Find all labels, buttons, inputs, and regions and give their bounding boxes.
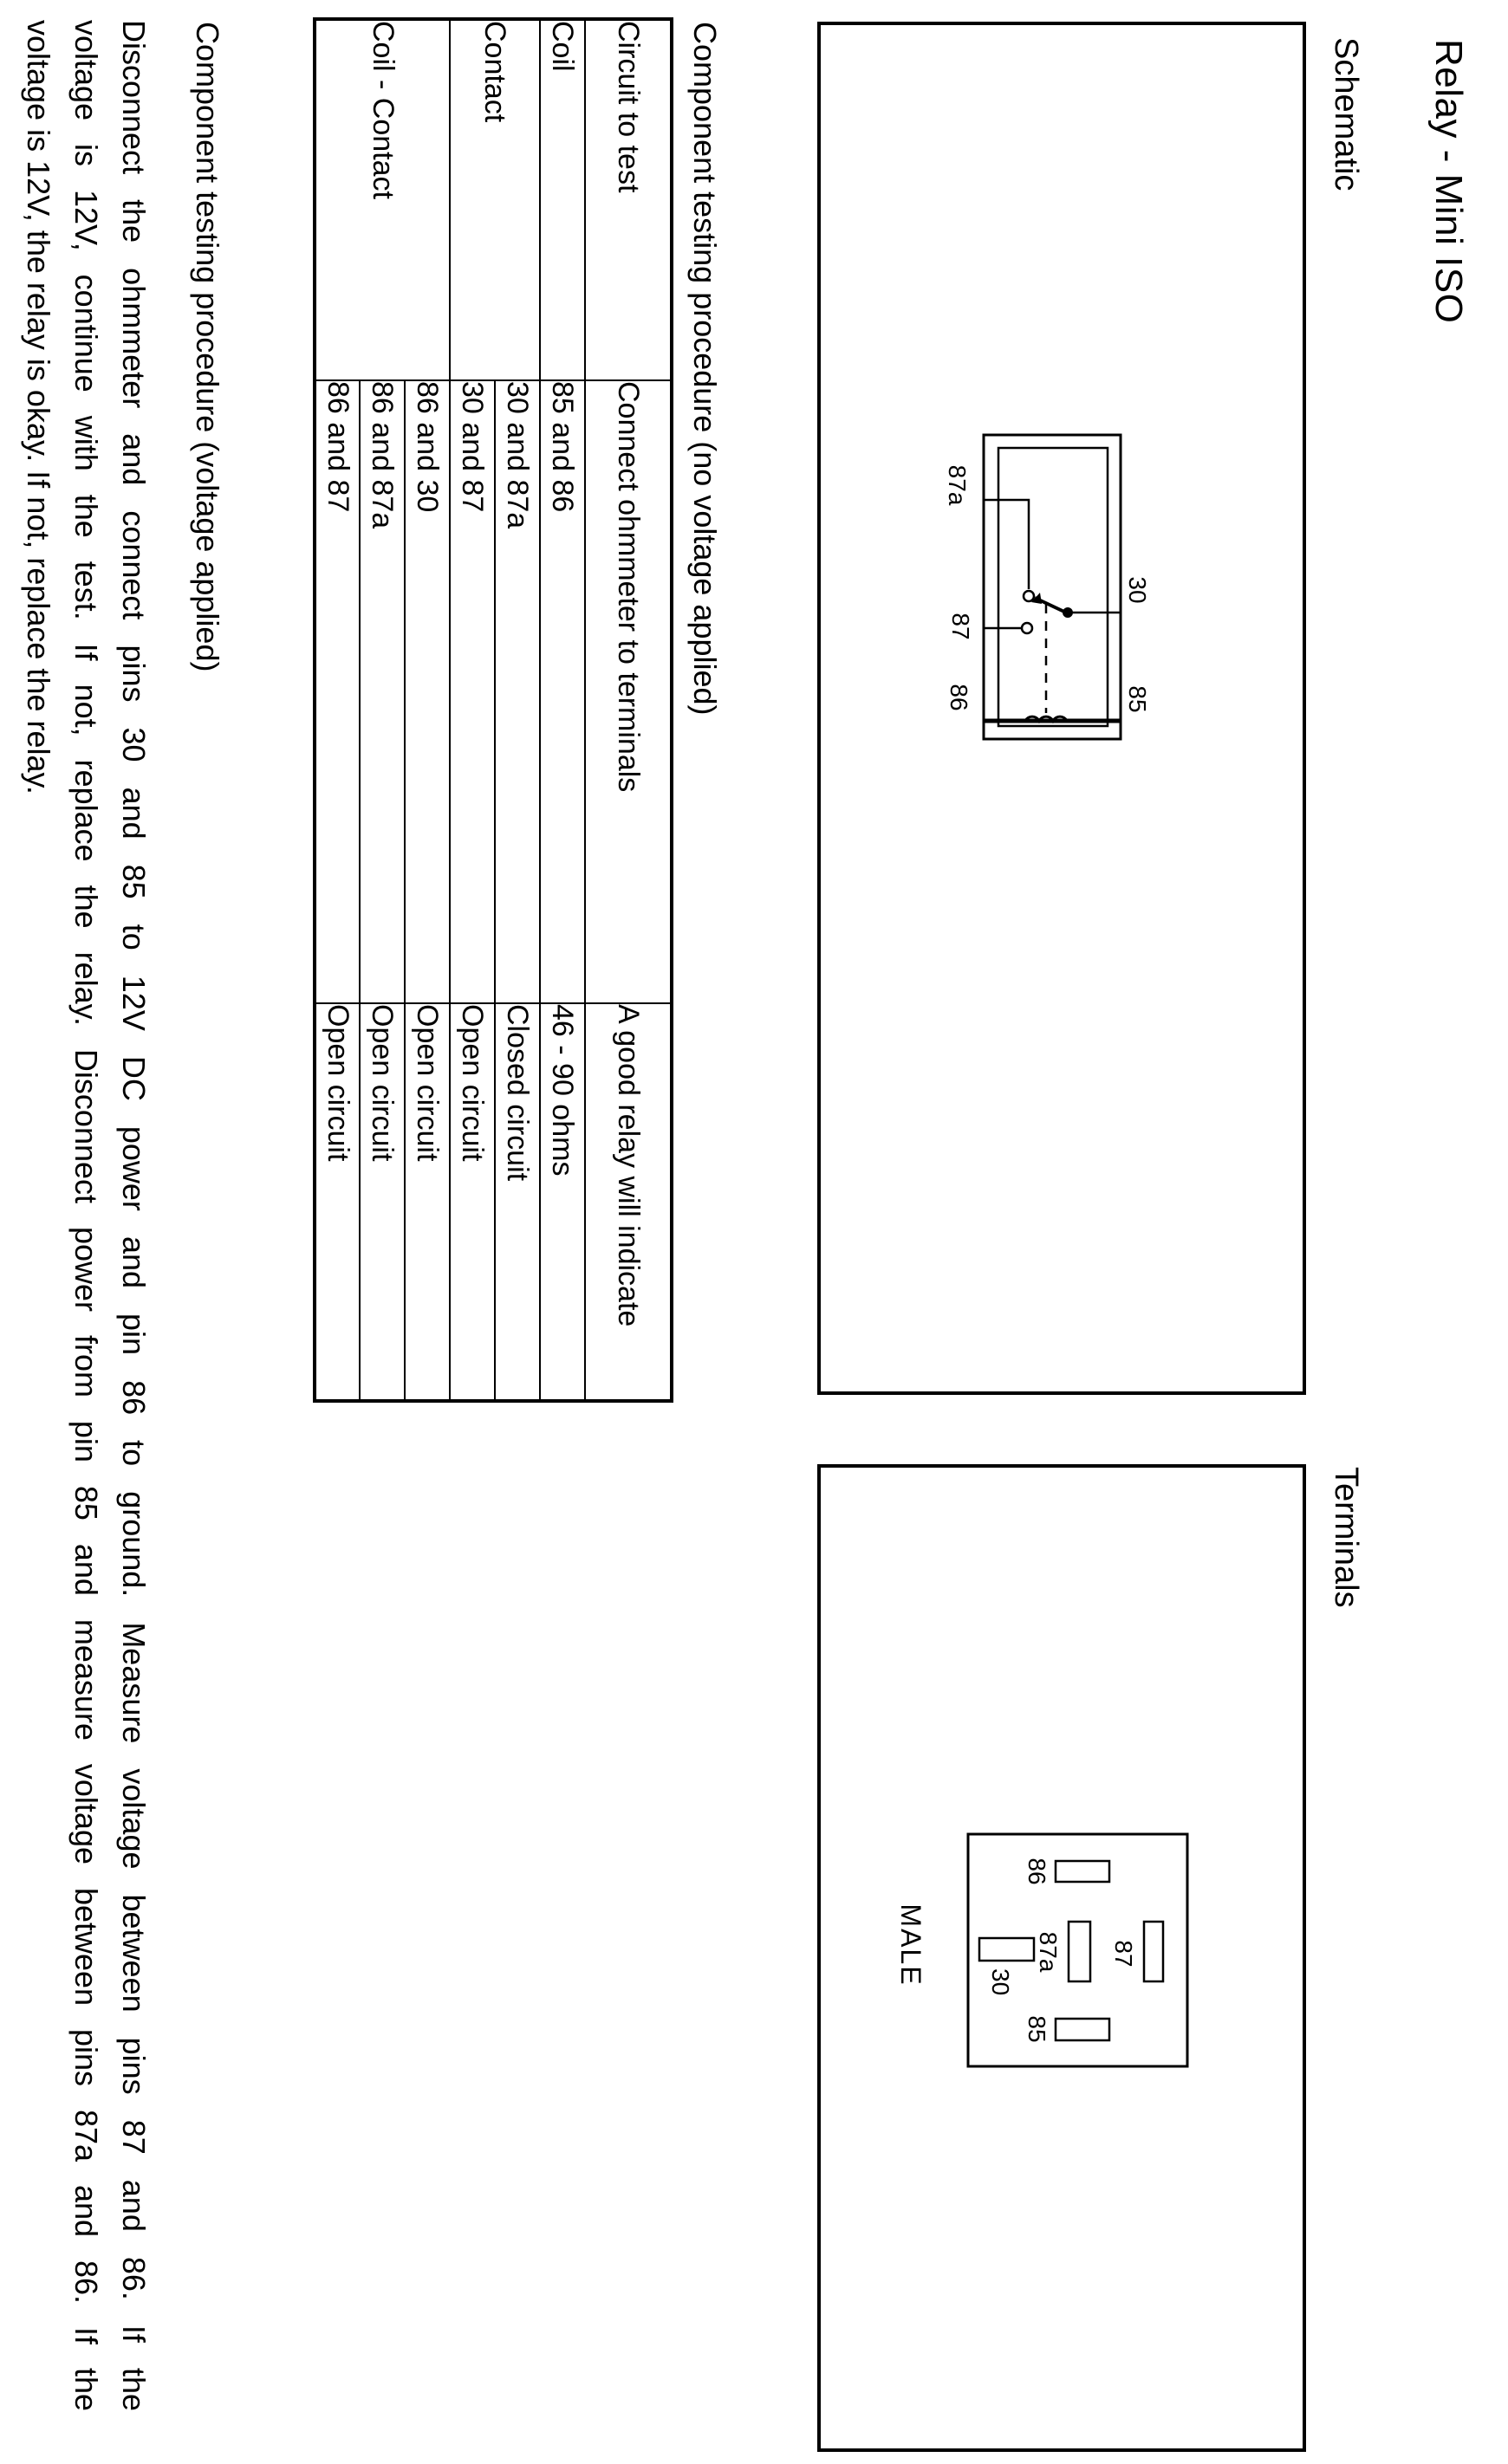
cell-terminals: 86 and 87a	[360, 380, 405, 1003]
cell-circuit: Contact	[450, 19, 540, 380]
relay-body-inner-outline	[998, 448, 1108, 726]
schematic-pin-label-87: 87	[947, 613, 974, 639]
voltage-test-heading: Component testing procedure (voltage app…	[189, 22, 225, 671]
terminals-section-box: 86 85 30 87a 87 MALE	[817, 1464, 1306, 2452]
terminals-section-heading: Terminals	[1327, 1467, 1364, 1608]
cell-indication: Closed circuit	[495, 1003, 540, 1401]
contact-87a-circle	[1024, 591, 1034, 601]
relay-body-outline	[984, 435, 1121, 739]
cell-indication: Open circuit	[450, 1003, 495, 1401]
terminal-slot-87	[1144, 1922, 1163, 1981]
connector-face-outline	[968, 1834, 1187, 2066]
cell-circuit: Coil	[540, 19, 585, 380]
connector-gender-label: MALE	[895, 1903, 926, 1986]
table-header-row: Circuit to test Connect ohmmeter to term…	[585, 19, 672, 1401]
table-row: Contact 30 and 87a Closed circuit	[495, 19, 540, 1401]
schematic-section-box: 87a 87 86 30 85	[817, 22, 1306, 1395]
terminal-label-85: 85	[1024, 2015, 1050, 2042]
terminal-label-87: 87	[1110, 1940, 1137, 1967]
cell-terminals: 30 and 87	[450, 380, 495, 1003]
table-row: Coil - Contact 86 and 30 Open circuit	[405, 19, 450, 1401]
terminals-connector-drawing: 86 85 30 87a 87 MALE	[821, 1468, 1303, 2448]
terminal-slot-86	[1056, 1861, 1109, 1882]
contact-87-circle	[1022, 623, 1032, 633]
terminal-slot-30	[979, 1938, 1034, 1961]
no-voltage-test-heading: Component testing procedure (no voltage …	[686, 22, 723, 716]
schematic-pin-label-30: 30	[1124, 576, 1151, 603]
cell-indication: Open circuit	[405, 1003, 450, 1401]
cell-indication: 46 - 90 ohms	[540, 1003, 585, 1401]
terminal-slot-85	[1056, 2019, 1109, 2040]
terminal-label-30: 30	[987, 1968, 1014, 1995]
cell-terminals: 86 and 30	[405, 380, 450, 1003]
cell-indication: Open circuit	[360, 1003, 405, 1401]
schematic-pin-label-86: 86	[946, 684, 972, 710]
cell-terminals: 30 and 87a	[495, 380, 540, 1003]
schematic-section-heading: Schematic	[1327, 37, 1364, 191]
cell-indication: Open circuit	[315, 1003, 360, 1401]
terminal-label-86: 86	[1024, 1858, 1050, 1884]
paragraph-line: Disconnect the ohmmeter and connect pins…	[110, 20, 158, 2411]
terminal-slot-87a	[1069, 1922, 1090, 1981]
wire-87a	[984, 500, 1029, 589]
column-header-circuit: Circuit to test	[585, 19, 672, 380]
cell-circuit: Coil - Contact	[315, 19, 450, 380]
paragraph-line: voltage is 12V, continue with the test. …	[62, 20, 110, 2411]
relay-schematic-drawing: 87a 87 86 30 85	[821, 25, 1303, 1391]
column-header-indication: A good relay will indicate	[585, 1003, 672, 1401]
table-row: Coil 85 and 86 46 - 90 ohms	[540, 19, 585, 1401]
schematic-pin-label-87a: 87a	[944, 465, 971, 506]
column-header-terminals: Connect ohmmeter to terminals	[585, 380, 672, 1003]
terminal-label-87a: 87a	[1035, 1932, 1062, 1973]
paragraph-line: voltage is 12V, the relay is okay. If no…	[15, 20, 62, 2411]
cell-terminals: 85 and 86	[540, 380, 585, 1003]
page-title: Relay - Mini ISO	[1427, 39, 1470, 323]
document-page: Relay - Mini ISO Schematic 87a	[0, 0, 1508, 2464]
schematic-pin-label-85: 85	[1124, 685, 1151, 712]
component-test-table: Circuit to test Connect ohmmeter to term…	[313, 17, 673, 1403]
voltage-test-paragraph: Disconnect the ohmmeter and connect pins…	[15, 20, 158, 2411]
cell-terminals: 86 and 87	[315, 380, 360, 1003]
